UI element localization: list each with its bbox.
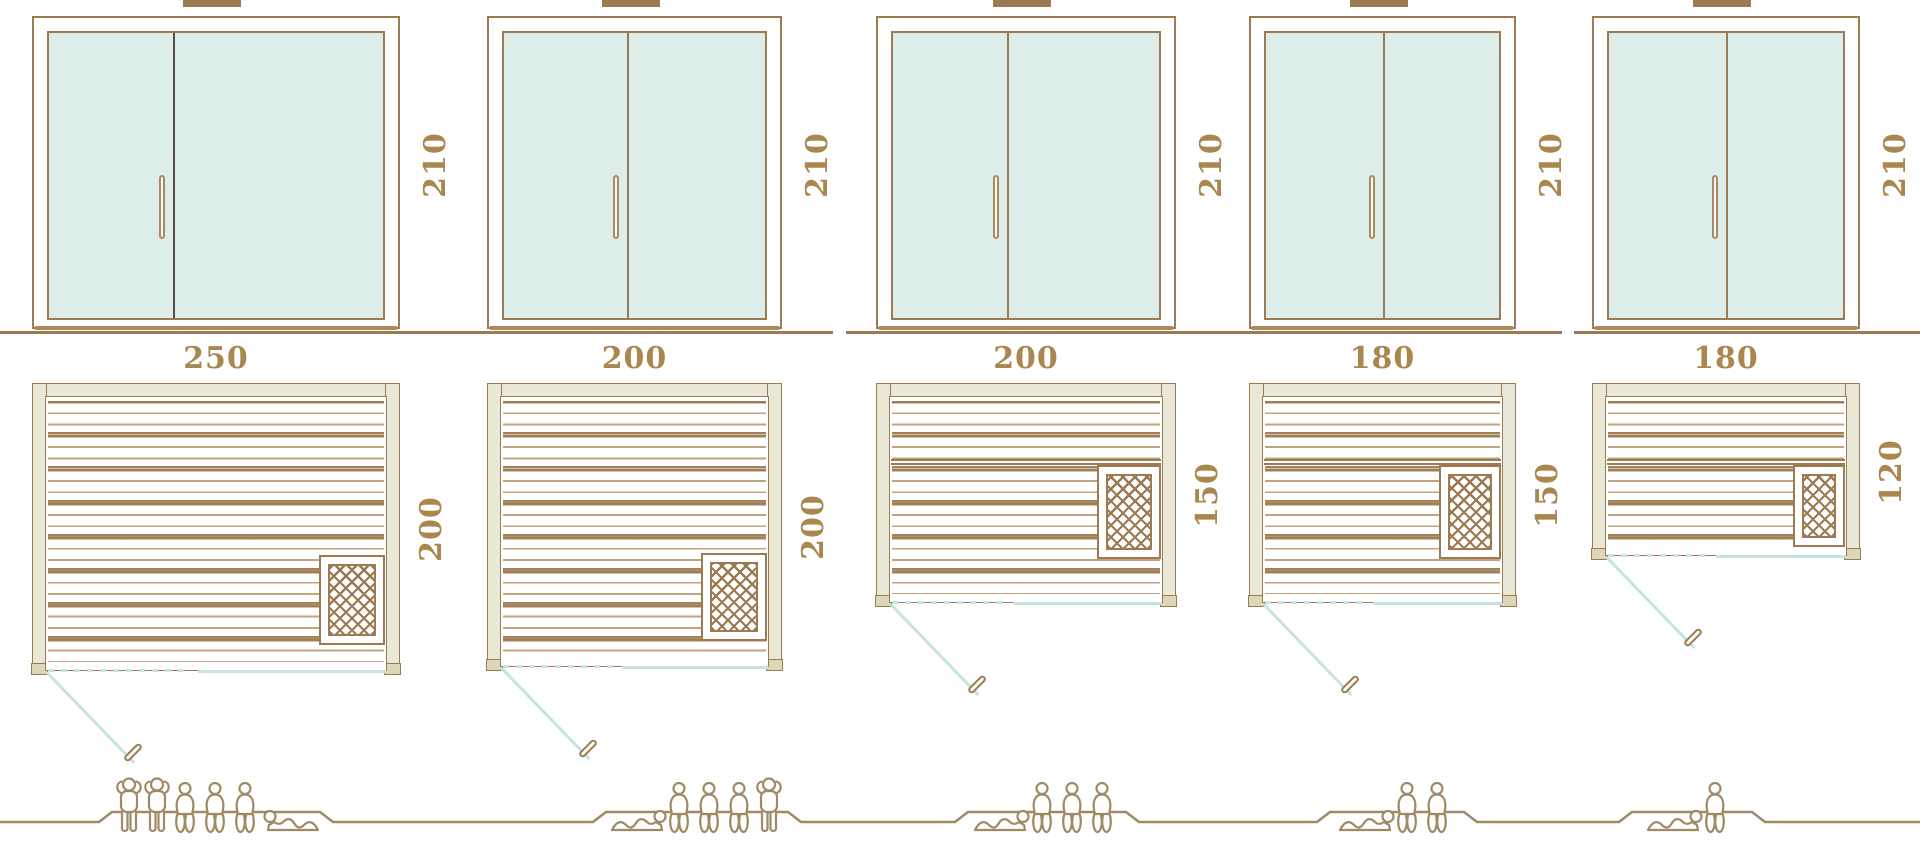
door-handle-icon bbox=[993, 175, 999, 239]
door-swing-line bbox=[501, 667, 590, 759]
width-dimension-label: 250 bbox=[156, 344, 276, 374]
person-sitting bbox=[1057, 782, 1087, 834]
heater-bench-box bbox=[701, 553, 767, 641]
door-elevation bbox=[1592, 16, 1860, 329]
door-elevation bbox=[487, 16, 782, 329]
person-sitting bbox=[200, 782, 230, 834]
height-dimension-label: 210 bbox=[1197, 120, 1227, 210]
plan-wall-right bbox=[767, 383, 782, 669]
heater-bench-box bbox=[1439, 465, 1501, 559]
door-opening-dashed-line bbox=[503, 665, 614, 668]
chimney-cap bbox=[993, 0, 1051, 7]
door-divider bbox=[1726, 33, 1728, 318]
door-glass-panels bbox=[502, 31, 767, 320]
door-divider bbox=[1007, 33, 1009, 318]
width-dimension-label: 200 bbox=[575, 344, 695, 374]
person-sitting bbox=[170, 782, 200, 834]
chimney-cap bbox=[183, 0, 241, 7]
person-sitting bbox=[1392, 782, 1422, 834]
person-sitting bbox=[694, 782, 724, 834]
door-opening-dashed-line bbox=[1265, 601, 1365, 604]
depth-dimension-label: 200 bbox=[417, 484, 447, 574]
plan-front-line bbox=[1013, 602, 1162, 605]
width-dimension-label: 180 bbox=[1666, 344, 1786, 374]
plan-front-line bbox=[1716, 555, 1846, 558]
door-glass-panels bbox=[1264, 31, 1501, 320]
door-divider bbox=[1383, 33, 1385, 318]
chimney-cap bbox=[1693, 0, 1751, 7]
door-handle-icon bbox=[1369, 175, 1375, 239]
height-dimension-label: 210 bbox=[421, 120, 451, 210]
door-elevation bbox=[1249, 16, 1516, 329]
plan-wall-right bbox=[1845, 383, 1860, 558]
width-dimension-label: 200 bbox=[966, 344, 1086, 374]
person-sitting bbox=[1422, 782, 1452, 834]
person-sitting bbox=[1027, 782, 1057, 834]
door-sill bbox=[879, 326, 1173, 330]
height-dimension-label: 210 bbox=[1537, 120, 1567, 210]
chimney-cap bbox=[1350, 0, 1408, 7]
door-elevation bbox=[876, 16, 1176, 329]
plan-front-line bbox=[1373, 602, 1502, 605]
person-standing bbox=[114, 777, 144, 834]
door-sill bbox=[35, 326, 397, 330]
person-lying bbox=[1646, 808, 1708, 834]
heater-bench-box bbox=[1097, 465, 1161, 559]
door-sill bbox=[1252, 326, 1513, 330]
sauna-size-comparison-diagram: 210250200 bbox=[0, 0, 1920, 856]
door-swing-line bbox=[890, 603, 979, 695]
heater-bench-box bbox=[1793, 465, 1845, 547]
door-handle-icon bbox=[159, 175, 165, 239]
door-handle-icon bbox=[613, 175, 619, 239]
person-lying bbox=[258, 808, 320, 834]
height-dimension-label: 210 bbox=[1881, 120, 1911, 210]
plan-front-line bbox=[198, 670, 386, 673]
door-glass-panels bbox=[1607, 31, 1845, 320]
door-swing-line bbox=[46, 671, 135, 763]
door-glass-panels bbox=[47, 31, 385, 320]
person-sitting bbox=[1700, 782, 1730, 834]
person-sitting bbox=[664, 782, 694, 834]
door-handle-icon bbox=[1712, 175, 1718, 239]
depth-dimension-label: 150 bbox=[1193, 450, 1223, 540]
door-sill bbox=[490, 326, 779, 330]
person-sitting bbox=[724, 782, 754, 834]
door-sill bbox=[1595, 326, 1857, 330]
heater-grill-icon bbox=[1448, 474, 1492, 550]
models-container: 210250200 bbox=[0, 0, 1920, 856]
plan-wall-right bbox=[1161, 383, 1176, 605]
chimney-cap bbox=[602, 0, 660, 7]
person-lying bbox=[1338, 808, 1400, 834]
elevation-ground-line bbox=[0, 331, 833, 334]
heater-grill-icon bbox=[1802, 474, 1836, 538]
height-dimension-label: 210 bbox=[803, 120, 833, 210]
heater-grill-icon bbox=[328, 564, 376, 636]
width-dimension-label: 180 bbox=[1323, 344, 1443, 374]
door-swing-line bbox=[1263, 603, 1352, 695]
heater-grill-icon bbox=[710, 562, 758, 632]
door-opening-dashed-line bbox=[48, 669, 190, 672]
door-elevation bbox=[32, 16, 400, 329]
person-standing bbox=[142, 777, 172, 834]
depth-dimension-label: 150 bbox=[1533, 450, 1563, 540]
plan-wall-right bbox=[1501, 383, 1516, 605]
depth-dimension-label: 120 bbox=[1877, 427, 1907, 517]
plan-front-line bbox=[622, 666, 768, 669]
elevation-ground-line bbox=[846, 331, 1562, 334]
door-swing-line bbox=[1606, 556, 1695, 648]
door-divider bbox=[173, 33, 176, 318]
door-opening-dashed-line bbox=[892, 601, 1005, 604]
elevation-ground-line bbox=[1574, 331, 1920, 334]
person-sitting bbox=[1087, 782, 1117, 834]
door-glass-panels bbox=[891, 31, 1161, 320]
door-opening-dashed-line bbox=[1608, 554, 1708, 557]
person-lying bbox=[610, 808, 672, 834]
door-divider bbox=[627, 33, 629, 318]
person-sitting bbox=[230, 782, 260, 834]
heater-bench-box bbox=[319, 555, 385, 645]
plan-wall-right bbox=[385, 383, 400, 673]
depth-dimension-label: 200 bbox=[799, 482, 829, 572]
person-lying bbox=[973, 808, 1035, 834]
person-standing bbox=[754, 777, 784, 834]
heater-grill-icon bbox=[1106, 474, 1152, 550]
